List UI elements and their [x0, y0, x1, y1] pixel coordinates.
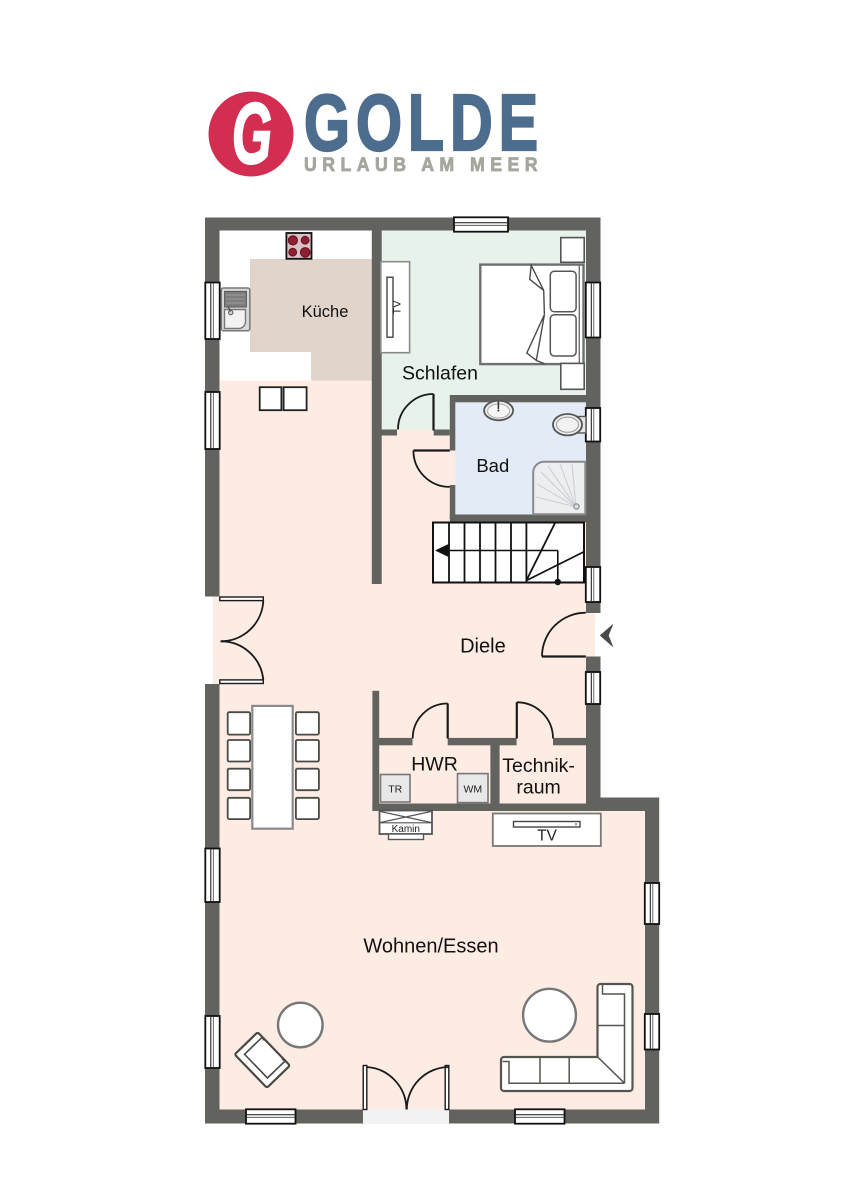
svg-text:Kamin: Kamin — [392, 824, 420, 835]
svg-text:Bad: Bad — [476, 455, 509, 476]
svg-text:Schlafen: Schlafen — [402, 363, 478, 385]
svg-text:TV: TV — [392, 300, 404, 315]
svg-text:Wohnen/Essen: Wohnen/Essen — [363, 936, 498, 958]
svg-text:Diele: Diele — [460, 636, 506, 658]
svg-text:URLAUB AM MEER: URLAUB AM MEER — [304, 154, 543, 176]
svg-text:Küche: Küche — [302, 303, 349, 321]
svg-text:TR: TR — [388, 784, 402, 796]
svg-text:WM: WM — [463, 784, 482, 796]
svg-text:G: G — [232, 87, 272, 183]
svg-text:HWR: HWR — [411, 754, 458, 776]
svg-text:TV: TV — [537, 828, 557, 845]
svg-text:Technik-: Technik- — [502, 755, 575, 777]
svg-text:raum: raum — [516, 777, 560, 799]
